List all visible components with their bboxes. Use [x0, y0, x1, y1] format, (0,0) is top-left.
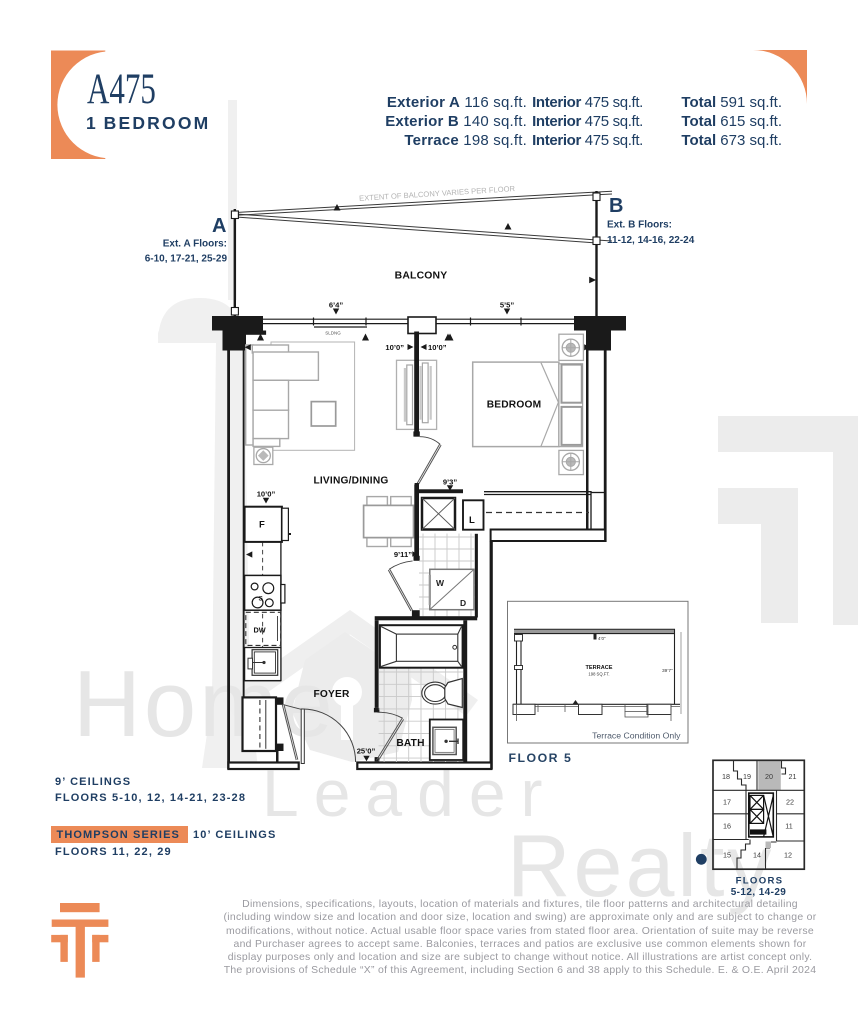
svg-text:5-12, 14-29: 5-12, 14-29: [731, 887, 787, 898]
svg-text:FLOORS: FLOORS: [736, 876, 784, 887]
svg-text:11: 11: [785, 822, 792, 831]
svg-text:FOYER: FOYER: [313, 689, 350, 700]
svg-text:6’4”: 6’4”: [329, 301, 344, 310]
svg-text:L: L: [469, 515, 475, 526]
svg-text:18: 18: [722, 772, 730, 781]
svg-text:19: 19: [743, 772, 751, 781]
svg-text:22: 22: [786, 798, 794, 807]
svg-text:SLDNG: SLDNG: [325, 331, 341, 336]
svg-text:Ext. B Floors:: Ext. B Floors:: [607, 220, 672, 231]
svg-text:25’0”: 25’0”: [357, 747, 376, 756]
svg-text:14: 14: [753, 851, 761, 860]
svg-text:10’0”: 10’0”: [385, 343, 404, 352]
svg-text:9’11”: 9’11”: [394, 550, 412, 559]
svg-text:BATH: BATH: [396, 738, 424, 749]
svg-text:DW: DW: [254, 626, 266, 635]
svg-text:17: 17: [723, 798, 731, 807]
svg-text:Ext. A Floors:: Ext. A Floors:: [163, 239, 227, 250]
svg-text:BEDROOM: BEDROOM: [487, 400, 542, 411]
svg-text:FLOOR 5: FLOOR 5: [509, 751, 573, 765]
svg-text:Terrace Condition Only: Terrace Condition Only: [592, 731, 681, 741]
svg-text:6-10, 17-21, 25-29: 6-10, 17-21, 25-29: [145, 254, 228, 265]
svg-text:16: 16: [723, 822, 731, 831]
svg-text:11-12, 14-16, 22-24: 11-12, 14-16, 22-24: [607, 235, 695, 246]
svg-text:5’5”: 5’5”: [500, 301, 515, 310]
svg-text:EXTENT OF BALCONY VARIES PER F: EXTENT OF BALCONY VARIES PER FLOOR: [359, 184, 516, 203]
svg-text:15: 15: [723, 851, 731, 860]
svg-text:F: F: [259, 520, 265, 531]
svg-text:BALCONY: BALCONY: [395, 271, 448, 282]
svg-text:B: B: [609, 195, 623, 217]
svg-text:198 SQ.FT.: 198 SQ.FT.: [588, 672, 609, 677]
svg-text:9’3”: 9’3”: [443, 478, 458, 487]
svg-text:A: A: [212, 215, 226, 237]
svg-text:21: 21: [789, 772, 797, 781]
svg-text:D: D: [460, 598, 466, 608]
svg-text:10’0”: 10’0”: [257, 490, 276, 499]
svg-text:20: 20: [765, 772, 773, 781]
svg-text:10’0”: 10’0”: [428, 343, 447, 352]
svg-text:S: S: [259, 596, 264, 603]
svg-text:12: 12: [784, 851, 792, 860]
svg-text:4’0”: 4’0”: [598, 636, 606, 641]
svg-text:39’7”: 39’7”: [662, 668, 673, 674]
svg-text:W: W: [436, 578, 445, 588]
svg-text:TERRACE: TERRACE: [585, 665, 612, 671]
svg-text:LIVING/DINING: LIVING/DINING: [313, 476, 388, 487]
